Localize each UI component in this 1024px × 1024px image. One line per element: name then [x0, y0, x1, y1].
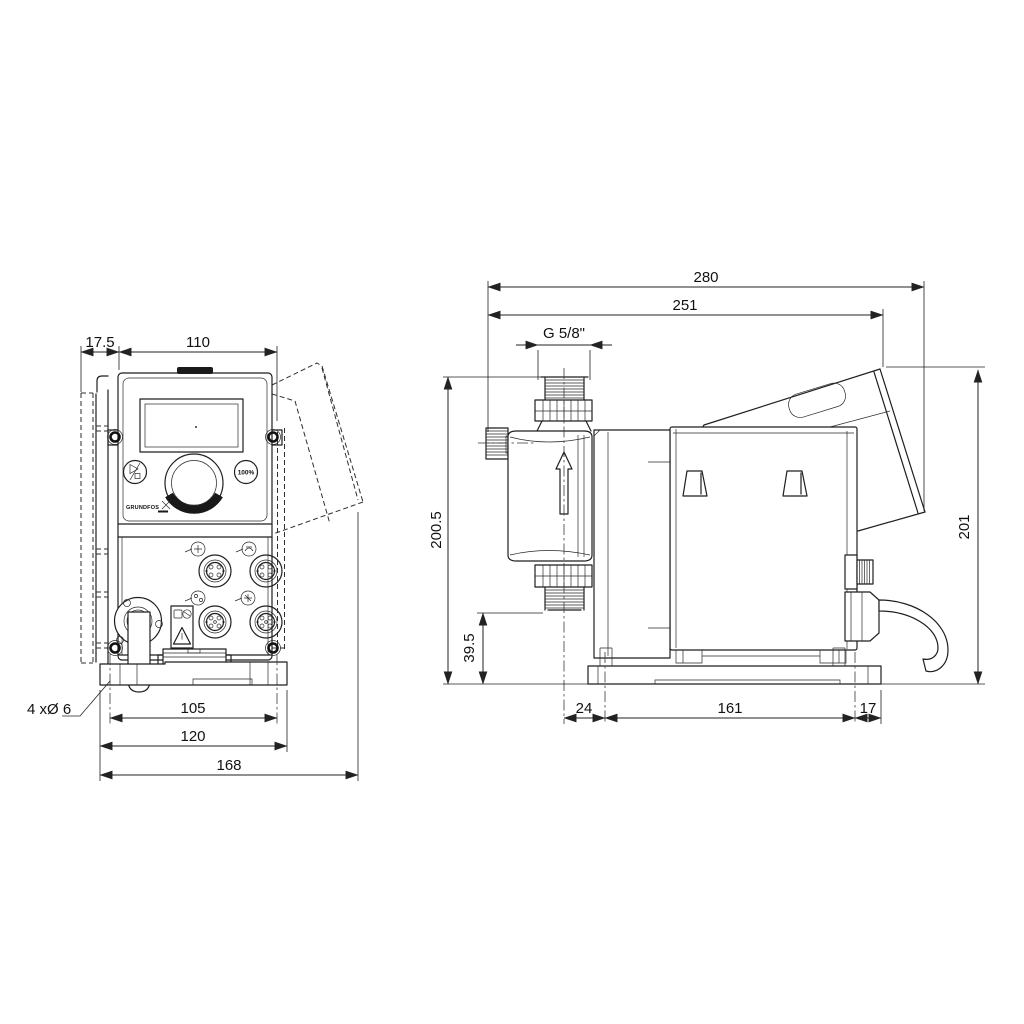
- svg-text:GRUNDFOS: GRUNDFOS: [126, 505, 159, 511]
- dim-251: 251: [672, 297, 697, 314]
- dim-161: 161: [717, 700, 742, 717]
- drive-bracket: [594, 430, 670, 658]
- screw-icon: [266, 430, 281, 445]
- dim-201: 201: [956, 514, 973, 539]
- dim-168: 168: [216, 757, 241, 774]
- start-stop-button[interactable]: [124, 461, 147, 484]
- pump-dimensional-drawing: 100% GRUNDFOS: [0, 0, 1024, 1024]
- click-wheel-knob[interactable]: [165, 454, 223, 512]
- screw-icon: [108, 430, 123, 445]
- discharge-valve: [535, 377, 592, 431]
- dim-17-5: 17.5: [85, 334, 114, 351]
- side-view: 280 251 G 5/8" 200.5 39.5 201 24 161 17: [428, 269, 985, 724]
- dim-105: 105: [180, 700, 205, 717]
- front-view: 100% GRUNDFOS: [27, 334, 363, 781]
- motor-housing: [670, 427, 857, 663]
- cable-gland-side: [845, 555, 948, 672]
- dim-120: 120: [180, 728, 205, 745]
- top-tab: [177, 367, 213, 374]
- dim-280: 280: [693, 269, 718, 286]
- suction-valve: [535, 565, 592, 610]
- dosing-head: [486, 377, 592, 610]
- mounting-plate-front: [100, 662, 287, 685]
- warning-label: [171, 606, 193, 648]
- screw-icon: [108, 641, 123, 656]
- hundred-percent-label: 100%: [238, 470, 255, 477]
- tilted-panel-hidden: [272, 363, 363, 652]
- dim-24: 24: [576, 700, 593, 717]
- wall-bracket-hidden-profile: [81, 376, 108, 664]
- cable-icon: [879, 600, 948, 672]
- dim-110: 110: [186, 334, 210, 351]
- dim-17: 17: [860, 700, 877, 717]
- thread-label: G 5/8": [543, 325, 585, 342]
- hundred-percent-button[interactable]: 100%: [235, 461, 258, 484]
- mounting-holes-label: 4 xØ 6: [27, 701, 71, 718]
- dim-200-5: 200.5: [428, 511, 445, 549]
- dim-39-5: 39.5: [461, 633, 478, 662]
